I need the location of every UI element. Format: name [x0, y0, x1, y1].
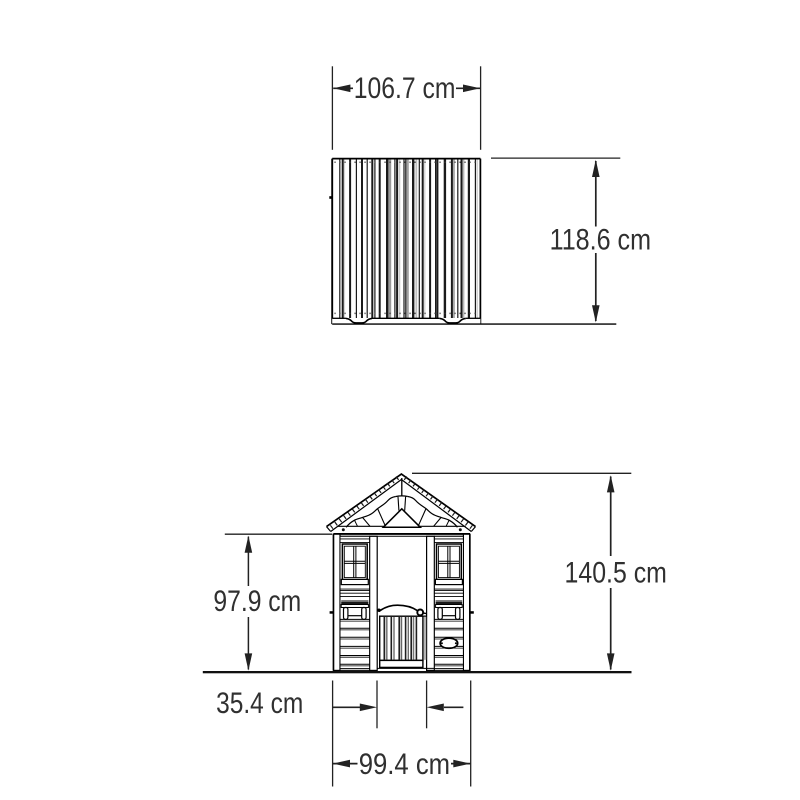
svg-text:118.6 cm: 118.6 cm: [550, 223, 651, 256]
svg-text:35.4 cm: 35.4 cm: [216, 687, 303, 720]
svg-text:99.4 cm: 99.4 cm: [359, 748, 450, 781]
svg-text:140.5 cm: 140.5 cm: [565, 557, 667, 590]
svg-text:106.7 cm: 106.7 cm: [354, 72, 456, 105]
svg-text:97.9 cm: 97.9 cm: [213, 585, 301, 618]
